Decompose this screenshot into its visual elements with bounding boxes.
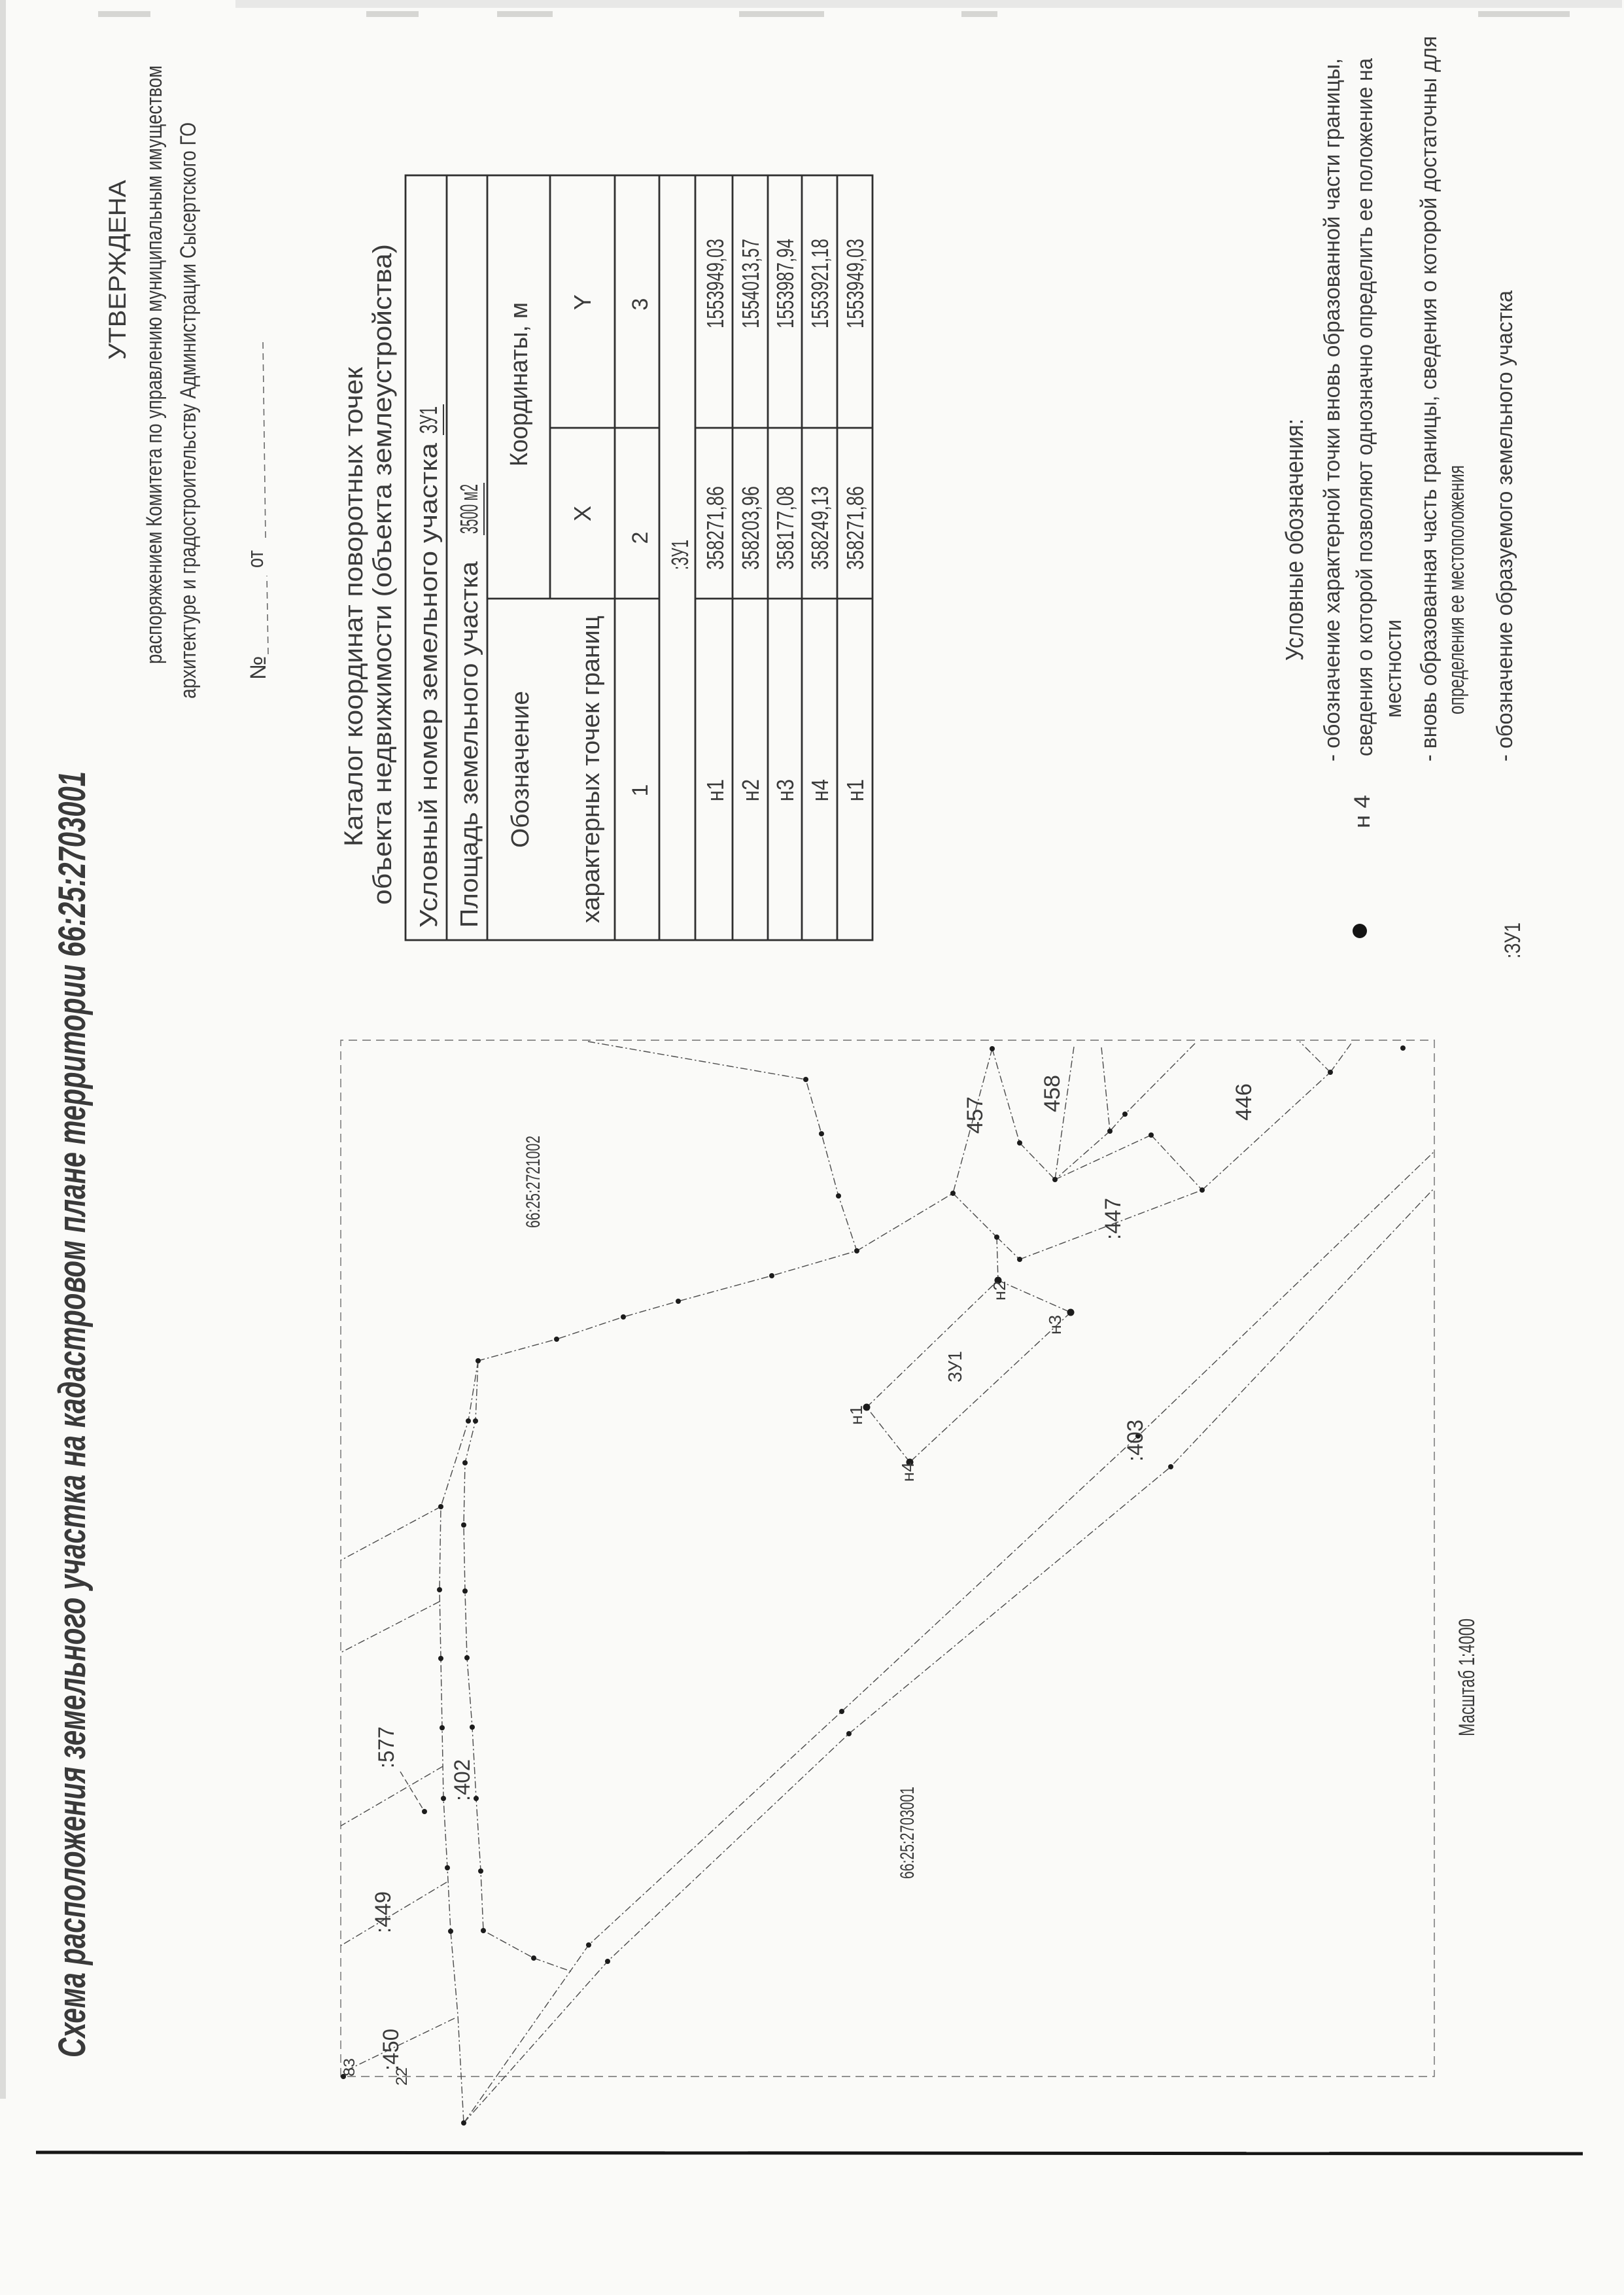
- svg-text:358203,96: 358203,96: [737, 486, 764, 570]
- svg-text:Каталог координат поворотных т: Каталог координат поворотных точек: [339, 366, 368, 847]
- svg-text:1554013,57: 1554013,57: [737, 239, 764, 328]
- svg-text::403: :403: [1123, 1420, 1148, 1462]
- svg-text:н1: н1: [702, 779, 729, 801]
- svg-text:446: 446: [1232, 1083, 1256, 1121]
- svg-text:66:25:2703001: 66:25:2703001: [897, 1787, 918, 1879]
- svg-text:Условный номер земельного учас: Условный номер земельного участка: [415, 442, 443, 928]
- svg-text:- обозначение образуемого земе: - обозначение образуемого земельного уча…: [1493, 290, 1517, 762]
- svg-text:83: 83: [341, 2058, 358, 2076]
- svg-text:Координаты, м: Координаты, м: [506, 302, 533, 466]
- svg-text:457: 457: [963, 1096, 988, 1134]
- svg-text:3: 3: [628, 298, 653, 311]
- svg-text:2: 2: [628, 532, 653, 544]
- svg-text:66:25:2721002: 66:25:2721002: [523, 1136, 544, 1228]
- svg-text:1: 1: [628, 784, 653, 797]
- svg-text:1553987,94: 1553987,94: [772, 239, 799, 328]
- svg-text:358271,86: 358271,86: [842, 486, 869, 570]
- svg-text:характерных точек границ: характерных точек границ: [578, 616, 605, 923]
- svg-text:- вновь образованная часть гра: - вновь образованная часть границы, свед…: [1417, 36, 1442, 762]
- svg-text::ЗУ1: :ЗУ1: [666, 540, 693, 570]
- svg-text::450: :450: [379, 2029, 404, 2071]
- svg-text:358177,08: 358177,08: [772, 486, 799, 570]
- svg-text:- обозначение характерной точк: - обозначение характерной точки вновь об…: [1320, 58, 1345, 762]
- svg-text:от: от: [243, 550, 268, 568]
- svg-text:н1: н1: [846, 1405, 866, 1425]
- svg-text:объекта недвижимости (объекта: объекта недвижимости (объекта землеустро…: [368, 244, 397, 905]
- svg-text::ЗУ1: :ЗУ1: [1500, 922, 1525, 958]
- svg-text:архитектуре и градостроительст: архитектуре и градостроительству Админис…: [176, 122, 201, 699]
- svg-text:Площадь земельного участка: Площадь земельного участка: [456, 561, 483, 928]
- svg-text:X: X: [569, 506, 596, 521]
- svg-text:ЗУ1: ЗУ1: [945, 1351, 966, 1382]
- svg-text:н 4: н 4: [1350, 795, 1375, 828]
- svg-text:местности: местности: [1381, 620, 1406, 718]
- svg-text::577: :577: [374, 1726, 399, 1768]
- svg-text:Схема расположения земельного: Схема расположения земельного участка на…: [51, 771, 94, 2058]
- svg-text:1553949,03: 1553949,03: [842, 239, 869, 328]
- svg-text:н1: н1: [842, 779, 869, 801]
- svg-text:н3: н3: [1045, 1315, 1065, 1335]
- svg-text:н4: н4: [806, 779, 833, 801]
- svg-text:сведения о которой позволяют о: сведения о которой позволяют однозначно …: [1353, 58, 1377, 756]
- svg-text:УТВЕРЖДЕНА: УТВЕРЖДЕНА: [104, 180, 131, 360]
- svg-text:1553949,03: 1553949,03: [702, 239, 729, 328]
- svg-text:3500 м2: 3500 м2: [456, 484, 483, 534]
- svg-text:№: №: [246, 656, 271, 680]
- svg-text:1553921,18: 1553921,18: [806, 239, 833, 328]
- svg-text:358249,13: 358249,13: [806, 486, 833, 570]
- svg-text::402: :402: [450, 1759, 475, 1801]
- svg-text:Обозначение: Обозначение: [507, 691, 534, 848]
- svg-text:определения ее местоположения: определения ее местоположения: [1444, 465, 1469, 714]
- svg-text::449: :449: [371, 1891, 396, 1933]
- svg-text:Y: Y: [569, 294, 596, 310]
- svg-text:н3: н3: [772, 779, 799, 801]
- svg-text:Условные обозначения:: Условные обозначения:: [1281, 419, 1309, 661]
- svg-text:распоряжением Комитета по упра: распоряжением Комитета по управлению мун…: [142, 65, 167, 664]
- svg-text:458: 458: [1040, 1075, 1065, 1112]
- svg-text:22: 22: [393, 2067, 411, 2086]
- svg-text:н2: н2: [990, 1281, 1009, 1301]
- svg-text::447: :447: [1101, 1198, 1126, 1240]
- svg-text:ЗУ1: ЗУ1: [415, 406, 443, 434]
- svg-text:н2: н2: [737, 779, 764, 801]
- svg-text:Масштаб 1:4000: Масштаб 1:4000: [1455, 1619, 1479, 1736]
- svg-text:н4: н4: [898, 1462, 918, 1482]
- svg-text:358271,86: 358271,86: [702, 486, 729, 570]
